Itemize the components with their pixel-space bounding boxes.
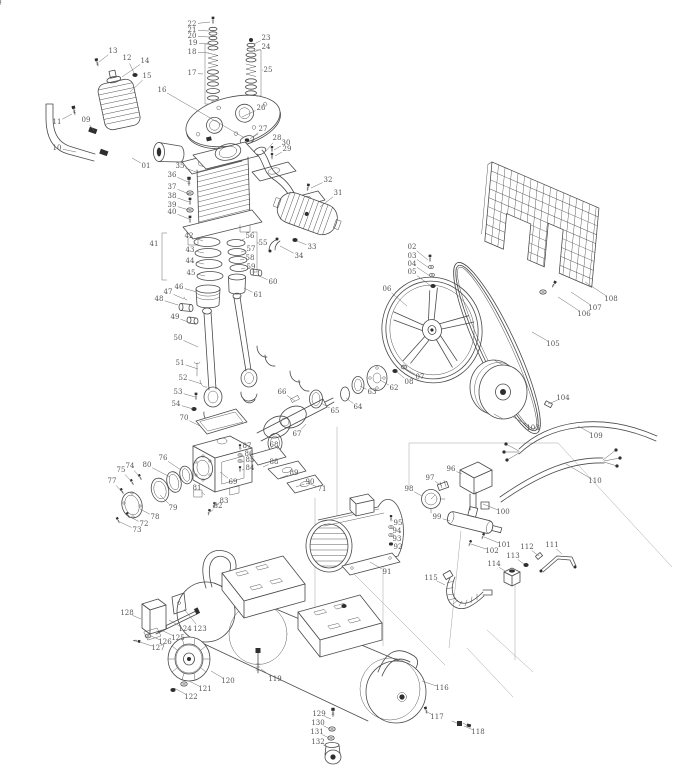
svg-text:92: 92 <box>394 543 403 551</box>
part-label-117: 117 <box>427 712 444 721</box>
svg-text:103: 103 <box>526 424 539 432</box>
part-label-09: 09 <box>82 116 94 131</box>
part-label-56: 56 <box>240 232 255 241</box>
svg-text:119: 119 <box>268 675 281 683</box>
part-label-64: 64 <box>346 398 363 411</box>
svg-text:02: 02 <box>408 243 417 251</box>
svg-text:110: 110 <box>588 477 601 485</box>
part-label-51: 51 <box>176 359 198 369</box>
part-label-49: 49 <box>171 313 188 322</box>
svg-text:65: 65 <box>331 407 340 415</box>
cylinder-block <box>183 141 262 245</box>
diagram-artwork <box>0 0 672 764</box>
diagram-canvas: 0102030405060708091011121314151617181920… <box>0 0 686 768</box>
part-label-119: 119 <box>261 669 282 683</box>
svg-text:122: 122 <box>184 693 197 701</box>
part-label-118: 118 <box>464 726 485 736</box>
svg-text:66: 66 <box>278 388 287 396</box>
svg-text:14: 14 <box>141 57 150 65</box>
part-label-110: 110 <box>566 464 602 485</box>
svg-text:08: 08 <box>405 378 414 386</box>
svg-text:50: 50 <box>174 334 183 342</box>
svg-text:86: 86 <box>245 450 254 458</box>
svg-text:102: 102 <box>485 547 498 555</box>
svg-text:96: 96 <box>447 465 456 473</box>
svg-text:114: 114 <box>487 560 501 568</box>
part-label-10: 10 <box>53 144 76 152</box>
part-label-105: 105 <box>532 332 560 348</box>
svg-text:32: 32 <box>324 176 333 184</box>
svg-text:94: 94 <box>393 527 402 535</box>
label-bracket <box>162 233 167 280</box>
svg-text:46: 46 <box>175 283 184 291</box>
svg-text:62: 62 <box>390 384 399 392</box>
svg-text:109: 109 <box>589 432 602 440</box>
drain-valve <box>452 721 471 727</box>
part-label-104: 104 <box>548 394 570 404</box>
belt-guard-grille <box>481 160 599 287</box>
part-label-87: 87 <box>241 442 251 450</box>
svg-text:131: 131 <box>310 728 323 736</box>
svg-text:06: 06 <box>383 285 392 293</box>
svg-text:77: 77 <box>108 477 117 485</box>
part-label-48: 48 <box>155 295 178 305</box>
svg-text:25: 25 <box>264 66 273 74</box>
svg-text:30: 30 <box>282 139 291 147</box>
svg-text:123: 123 <box>193 625 206 633</box>
svg-text:56: 56 <box>246 232 255 240</box>
part-label-33: 33 <box>297 241 316 251</box>
part-label-55: 55 <box>257 239 267 247</box>
svg-text:90: 90 <box>306 478 315 486</box>
part-label-120: 120 <box>211 671 235 685</box>
svg-text:16: 16 <box>158 86 167 94</box>
svg-text:78: 78 <box>151 513 160 521</box>
part-label-50: 50 <box>174 334 198 347</box>
svg-text:38: 38 <box>168 192 177 200</box>
svg-text:34: 34 <box>295 252 304 260</box>
part-label-67: 67 <box>293 424 306 438</box>
muffler <box>154 143 185 163</box>
part-label-52: 52 <box>179 374 202 384</box>
part-label-132: 132 <box>311 738 327 747</box>
svg-text:03: 03 <box>408 252 417 260</box>
svg-text:118: 118 <box>471 728 484 736</box>
svg-text:19: 19 <box>189 39 198 47</box>
intake-pipe-assembly <box>46 104 108 161</box>
svg-text:89: 89 <box>290 469 299 477</box>
part-label-122: 122 <box>174 688 198 701</box>
svg-text:48: 48 <box>155 295 164 303</box>
part-label-111: 111 <box>545 541 562 554</box>
svg-text:51: 51 <box>176 359 185 367</box>
svg-text:43: 43 <box>186 246 195 254</box>
svg-text:40: 40 <box>168 208 177 216</box>
svg-text:129: 129 <box>312 710 325 718</box>
svg-text:17: 17 <box>188 69 197 77</box>
part-label-131: 131 <box>310 728 329 738</box>
svg-text:33: 33 <box>308 243 317 251</box>
svg-text:67: 67 <box>293 430 302 438</box>
svg-text:132: 132 <box>311 738 324 746</box>
part-label-68: 68 <box>270 441 279 449</box>
svg-text:95: 95 <box>394 519 403 527</box>
part-label-93: 93 <box>391 535 401 543</box>
svg-text:26: 26 <box>257 104 266 112</box>
svg-text:99: 99 <box>433 513 442 521</box>
part-label-106: 106 <box>558 297 591 318</box>
part-label-95: 95 <box>392 519 402 527</box>
svg-text:49: 49 <box>171 313 180 321</box>
part-label-53: 53 <box>174 388 195 397</box>
svg-text:53: 53 <box>174 388 183 396</box>
part-label-13: 13 <box>99 47 117 62</box>
svg-text:27: 27 <box>259 125 268 133</box>
svg-text:88: 88 <box>270 458 279 466</box>
motor-pulley <box>470 360 527 419</box>
svg-text:97: 97 <box>426 474 435 482</box>
part-label-128: 128 <box>120 609 141 619</box>
svg-text:69: 69 <box>229 478 238 486</box>
svg-text:121: 121 <box>198 685 211 693</box>
svg-text:41: 41 <box>150 240 159 248</box>
part-label-25: 25 <box>262 66 272 74</box>
svg-text:87: 87 <box>243 442 252 450</box>
svg-text:91: 91 <box>383 568 392 576</box>
part-label-127: 127 <box>140 642 165 652</box>
part-label-61: 61 <box>244 288 262 299</box>
svg-text:68: 68 <box>270 441 279 449</box>
part-label-79: 79 <box>160 495 177 512</box>
svg-text:117: 117 <box>430 713 443 721</box>
gasket-plates <box>250 447 323 493</box>
discharge-pipes <box>443 553 576 609</box>
part-label-74: 74 <box>126 462 140 477</box>
part-label-108: 108 <box>585 282 618 303</box>
part-label-102: 102 <box>471 544 499 555</box>
part-label-70: 70 <box>180 414 200 426</box>
svg-text:61: 61 <box>254 291 263 299</box>
svg-text:74: 74 <box>126 462 135 470</box>
part-label-19: 19 <box>189 39 209 47</box>
part-label-32: 32 <box>311 176 332 188</box>
part-label-121: 121 <box>189 681 212 693</box>
part-label-66: 66 <box>278 388 295 401</box>
svg-text:10: 10 <box>53 144 62 152</box>
part-label-109: 109 <box>578 426 603 440</box>
part-label-97: 97 <box>426 474 442 486</box>
part-label-59: 59 <box>241 263 255 271</box>
svg-text:128: 128 <box>120 609 133 617</box>
part-label-54: 54 <box>172 400 193 409</box>
part-label-113: 113 <box>506 552 524 564</box>
svg-text:37: 37 <box>168 183 177 191</box>
part-label-11: 11 <box>53 114 72 126</box>
svg-text:07: 07 <box>416 373 425 381</box>
svg-text:24: 24 <box>262 43 271 51</box>
svg-text:31: 31 <box>334 189 343 197</box>
svg-text:42: 42 <box>185 232 194 240</box>
part-label-80: 80 <box>143 461 170 477</box>
svg-text:124: 124 <box>178 625 192 633</box>
svg-text:15: 15 <box>143 72 152 80</box>
svg-text:127: 127 <box>151 644 164 652</box>
svg-text:47: 47 <box>164 288 173 296</box>
svg-text:130: 130 <box>311 719 324 727</box>
svg-text:107: 107 <box>588 304 601 312</box>
valve-stacks <box>207 17 257 105</box>
part-label-24: 24 <box>254 43 271 52</box>
part-label-73: 73 <box>120 522 141 534</box>
svg-text:18: 18 <box>188 48 197 56</box>
crankshaft-assembly <box>257 366 387 453</box>
part-label-129: 129 <box>312 710 331 719</box>
part-label-94: 94 <box>391 527 402 535</box>
part-label-103: 103 <box>513 417 540 432</box>
part-label-18: 18 <box>188 48 209 56</box>
svg-text:115: 115 <box>424 574 437 582</box>
svg-text:35: 35 <box>176 162 185 170</box>
svg-text:116: 116 <box>435 684 449 692</box>
svg-text:105: 105 <box>546 340 559 348</box>
part-label-17: 17 <box>188 69 203 77</box>
air-tank <box>177 550 426 723</box>
svg-text:54: 54 <box>172 400 181 408</box>
part-label-115: 115 <box>424 574 445 585</box>
part-label-60: 60 <box>259 276 277 286</box>
svg-text:71: 71 <box>318 485 327 493</box>
svg-text:12: 12 <box>123 54 132 62</box>
svg-text:111: 111 <box>545 541 558 549</box>
svg-text:75: 75 <box>117 466 126 474</box>
part-label-107: 107 <box>571 292 602 312</box>
svg-text:01: 01 <box>142 162 151 170</box>
part-label-41: 41 <box>150 240 160 248</box>
part-label-36: 36 <box>168 171 188 182</box>
svg-text:11: 11 <box>53 118 62 126</box>
part-label-34: 34 <box>280 246 304 260</box>
svg-text:09: 09 <box>82 116 91 124</box>
part-label-114: 114 <box>487 560 505 571</box>
svg-text:76: 76 <box>159 454 168 462</box>
svg-text:80: 80 <box>143 461 152 469</box>
part-label-57: 57 <box>241 245 255 253</box>
svg-text:70: 70 <box>180 414 189 422</box>
svg-text:108: 108 <box>604 295 617 303</box>
part-label-98: 98 <box>405 485 422 496</box>
svg-text:04: 04 <box>408 260 417 268</box>
part-label-92: 92 <box>392 543 402 551</box>
svg-text:59: 59 <box>247 263 256 271</box>
svg-text:28: 28 <box>273 134 282 142</box>
svg-text:125: 125 <box>171 634 184 642</box>
label-bracket <box>256 50 261 96</box>
svg-text:100: 100 <box>496 508 509 516</box>
svg-text:44: 44 <box>186 257 195 265</box>
svg-text:120: 120 <box>221 677 234 685</box>
caster-assembly <box>325 708 341 764</box>
part-label-77: 77 <box>108 477 122 492</box>
power-cables <box>500 422 657 502</box>
svg-text:36: 36 <box>168 171 177 179</box>
pistons <box>179 269 262 324</box>
part-label-22: 22 <box>188 20 210 28</box>
part-label-100: 100 <box>483 504 510 516</box>
part-label-28: 28 <box>266 134 281 151</box>
bearing-covers <box>119 465 194 520</box>
svg-text:93: 93 <box>393 535 402 543</box>
svg-text:23: 23 <box>262 34 271 42</box>
exploded-parts-diagram: 0102030405060708091011121314151617181920… <box>0 0 686 768</box>
part-label-76: 76 <box>159 454 181 470</box>
svg-text:60: 60 <box>269 278 278 286</box>
svg-text:83: 83 <box>220 497 229 505</box>
svg-text:55: 55 <box>259 239 268 247</box>
svg-text:73: 73 <box>133 526 142 534</box>
svg-text:101: 101 <box>497 541 510 549</box>
svg-text:52: 52 <box>179 374 188 382</box>
svg-text:05: 05 <box>408 268 417 276</box>
part-label-40: 40 <box>168 208 189 219</box>
svg-text:104: 104 <box>556 394 570 402</box>
svg-text:81: 81 <box>193 484 202 492</box>
part-label-62: 62 <box>380 380 398 392</box>
part-label-112: 112 <box>520 543 539 556</box>
part-label-44: 44 <box>186 257 204 265</box>
svg-text:58: 58 <box>246 254 255 262</box>
connecting-rods <box>194 293 309 425</box>
svg-text:63: 63 <box>368 388 377 396</box>
part-label-45: 45 <box>187 269 205 277</box>
part-label-46: 46 <box>175 283 197 292</box>
svg-text:13: 13 <box>109 47 118 55</box>
svg-text:112: 112 <box>520 543 533 551</box>
svg-text:113: 113 <box>506 552 519 560</box>
svg-text:45: 45 <box>187 269 196 277</box>
part-label-01: 01 <box>132 158 150 170</box>
svg-text:98: 98 <box>405 485 414 493</box>
svg-text:57: 57 <box>247 245 256 253</box>
svg-text:22: 22 <box>188 20 197 28</box>
svg-text:79: 79 <box>169 504 178 512</box>
svg-text:64: 64 <box>354 403 363 411</box>
svg-text:84: 84 <box>246 464 255 472</box>
